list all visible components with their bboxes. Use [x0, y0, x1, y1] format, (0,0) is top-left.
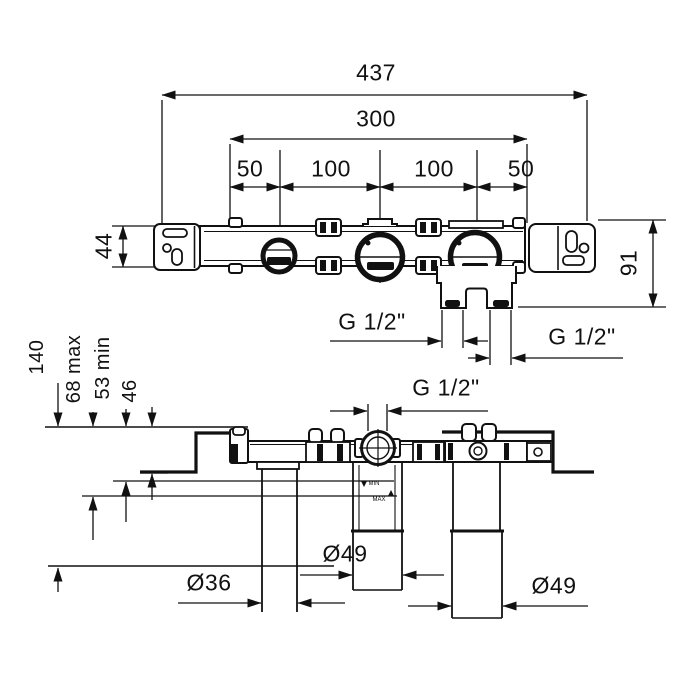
dia-pipe-left: Ø36	[187, 572, 232, 595]
valve-3-block	[445, 424, 551, 462]
valve-1	[263, 240, 295, 272]
dim-overall-width: 437	[356, 62, 396, 85]
dim-body-height: 44	[93, 233, 116, 260]
dim-spacing-100-left: 100	[311, 158, 351, 181]
max-mark: MAX	[372, 497, 385, 503]
dia-pipe-middle: Ø49	[323, 543, 368, 566]
pipe-3	[450, 462, 504, 618]
bottom-view-dimensions	[45, 383, 588, 606]
thread-outlet-left: G 1/2"	[338, 311, 405, 334]
dia-pipe-right: Ø49	[532, 575, 577, 598]
right-bracket	[525, 224, 595, 272]
outlet-manifold	[437, 266, 516, 308]
dim-plaster-depth-max: 68 max	[64, 335, 84, 404]
dim-mounting-width: 300	[356, 108, 396, 131]
left-bracket	[154, 224, 200, 270]
pipe-1	[257, 462, 299, 612]
bottom-view	[45, 383, 594, 618]
min-mark: MIN	[369, 481, 380, 487]
clip-fitting-a	[306, 429, 350, 462]
dim-spacing-50-right: 50	[508, 158, 535, 181]
dim-spacing-50-left: 50	[237, 158, 264, 181]
technical-drawing-canvas: 437 300 50 100 100 50 44 91 G 1/2" G 1/2…	[0, 0, 700, 700]
left-bracket-strip	[140, 433, 243, 472]
thread-outlet-right: G 1/2"	[548, 326, 615, 349]
dim-spacing-100-right: 100	[414, 158, 454, 181]
left-bracket-plate	[230, 427, 248, 463]
clip-fitting-b	[413, 442, 444, 462]
top-view-body	[154, 218, 595, 308]
dim-bracket-depth: 46	[120, 379, 140, 402]
thread-top-port: G 1/2"	[412, 377, 479, 400]
bottom-view-body	[230, 424, 553, 618]
dim-total-height: 91	[618, 250, 641, 277]
dim-plaster-depth-min: 53 min	[93, 336, 113, 399]
dim-total-depth: 140	[27, 340, 47, 375]
